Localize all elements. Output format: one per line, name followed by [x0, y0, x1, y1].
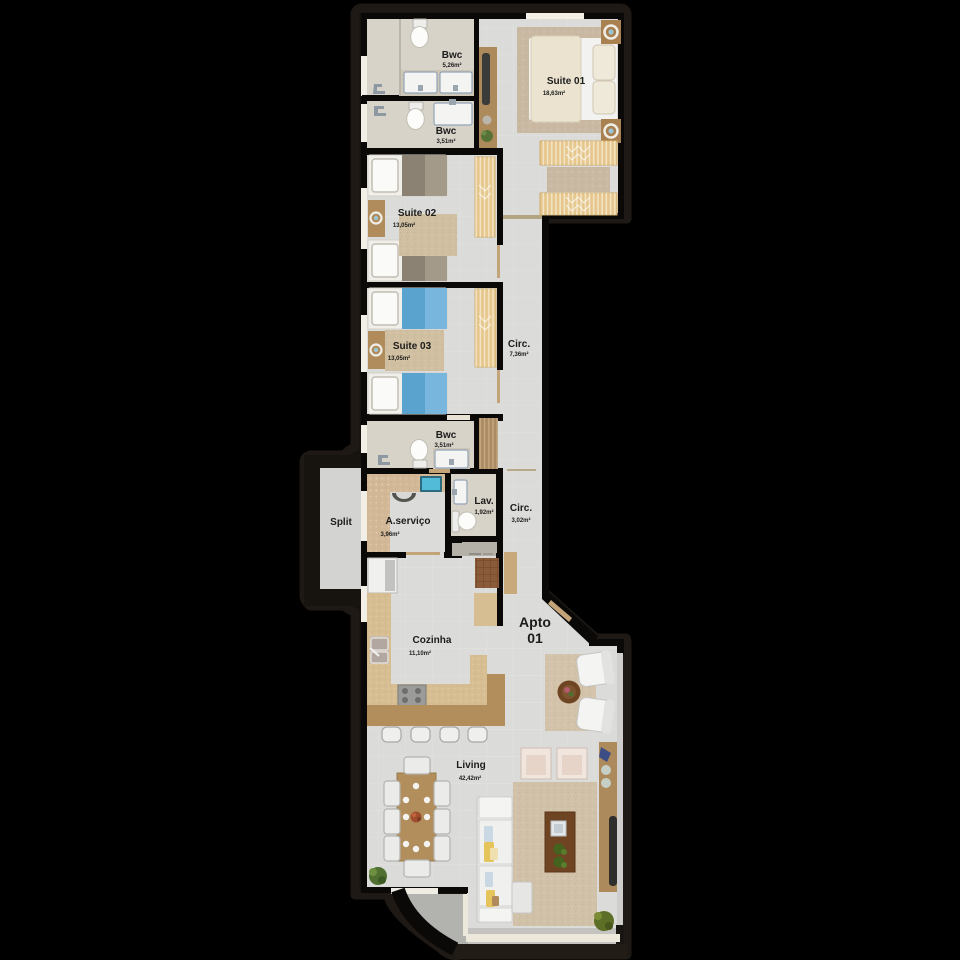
- svg-text:Bwc: Bwc: [436, 430, 457, 441]
- svg-text:Suite 01: Suite 01: [547, 76, 586, 87]
- svg-text:Living: Living: [456, 760, 485, 771]
- svg-text:Lav.: Lav.: [474, 496, 493, 507]
- svg-text:Circ.: Circ.: [510, 503, 532, 514]
- svg-text:11,10m²: 11,10m²: [409, 650, 431, 657]
- svg-text:Suite 02: Suite 02: [398, 208, 437, 219]
- svg-text:1,92m²: 1,92m²: [474, 509, 493, 516]
- svg-text:18,63m²: 18,63m²: [543, 90, 565, 97]
- svg-text:13,05m²: 13,05m²: [393, 222, 415, 229]
- svg-text:5,26m²: 5,26m²: [442, 62, 461, 69]
- svg-text:7,36m²: 7,36m²: [509, 351, 528, 358]
- svg-text:42,42m²: 42,42m²: [459, 775, 481, 782]
- svg-text:Circ.: Circ.: [508, 339, 530, 350]
- svg-text:Split: Split: [330, 517, 352, 528]
- svg-text:3,51m²: 3,51m²: [434, 442, 453, 449]
- svg-text:Bwc: Bwc: [436, 126, 457, 137]
- svg-text:13,05m²: 13,05m²: [388, 355, 410, 362]
- svg-text:Suite 03: Suite 03: [393, 341, 432, 352]
- svg-text:3,02m²: 3,02m²: [511, 517, 530, 524]
- svg-text:3,96m²: 3,96m²: [380, 531, 399, 538]
- svg-text:3,51m²: 3,51m²: [436, 138, 455, 145]
- svg-text:A.serviço: A.serviço: [385, 516, 430, 527]
- svg-text:Apto: Apto: [519, 614, 551, 630]
- svg-text:Bwc: Bwc: [442, 50, 463, 61]
- svg-text:01: 01: [527, 630, 543, 646]
- svg-text:Cozinha: Cozinha: [413, 635, 452, 646]
